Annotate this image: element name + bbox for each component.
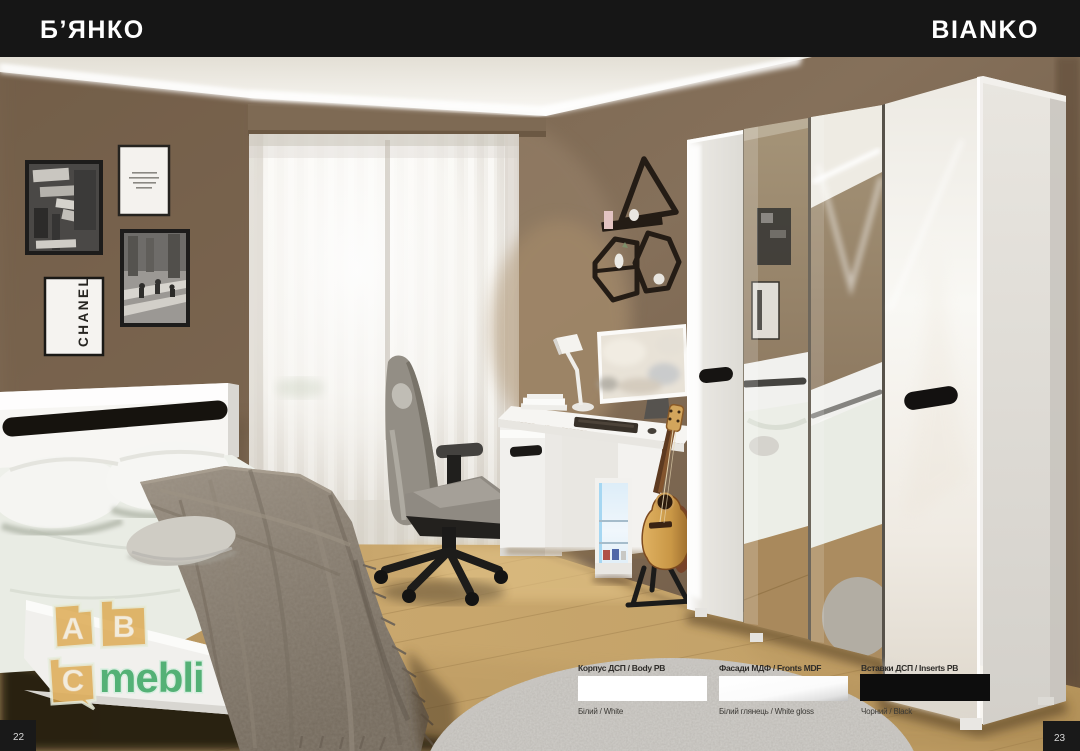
svg-text:C: C <box>62 663 84 698</box>
svg-text:B: B <box>113 609 135 644</box>
svg-text:CHANEL: CHANEL <box>76 276 91 347</box>
svg-text:Вставки ДСП / Inserts PB: Вставки ДСП / Inserts PB <box>861 663 958 673</box>
svg-text:Б’ЯНКО: Б’ЯНКО <box>40 16 145 44</box>
svg-text:Білий / White: Білий / White <box>578 707 624 716</box>
svg-text:23: 23 <box>1054 733 1066 744</box>
svg-text:Фасади МДФ / Fronts MDF: Фасади МДФ / Fronts MDF <box>719 663 821 673</box>
svg-text:mebli: mebli <box>99 654 204 701</box>
svg-text:Білий глянець / White gloss: Білий глянець / White gloss <box>719 707 814 716</box>
svg-text:Корпус ДСП / Body PB: Корпус ДСП / Body PB <box>578 663 665 673</box>
svg-text:Чорний / Black: Чорний / Black <box>861 707 913 716</box>
svg-text:A: A <box>62 611 84 646</box>
svg-text:BIANKO: BIANKO <box>931 16 1039 44</box>
svg-text:22: 22 <box>13 732 25 743</box>
